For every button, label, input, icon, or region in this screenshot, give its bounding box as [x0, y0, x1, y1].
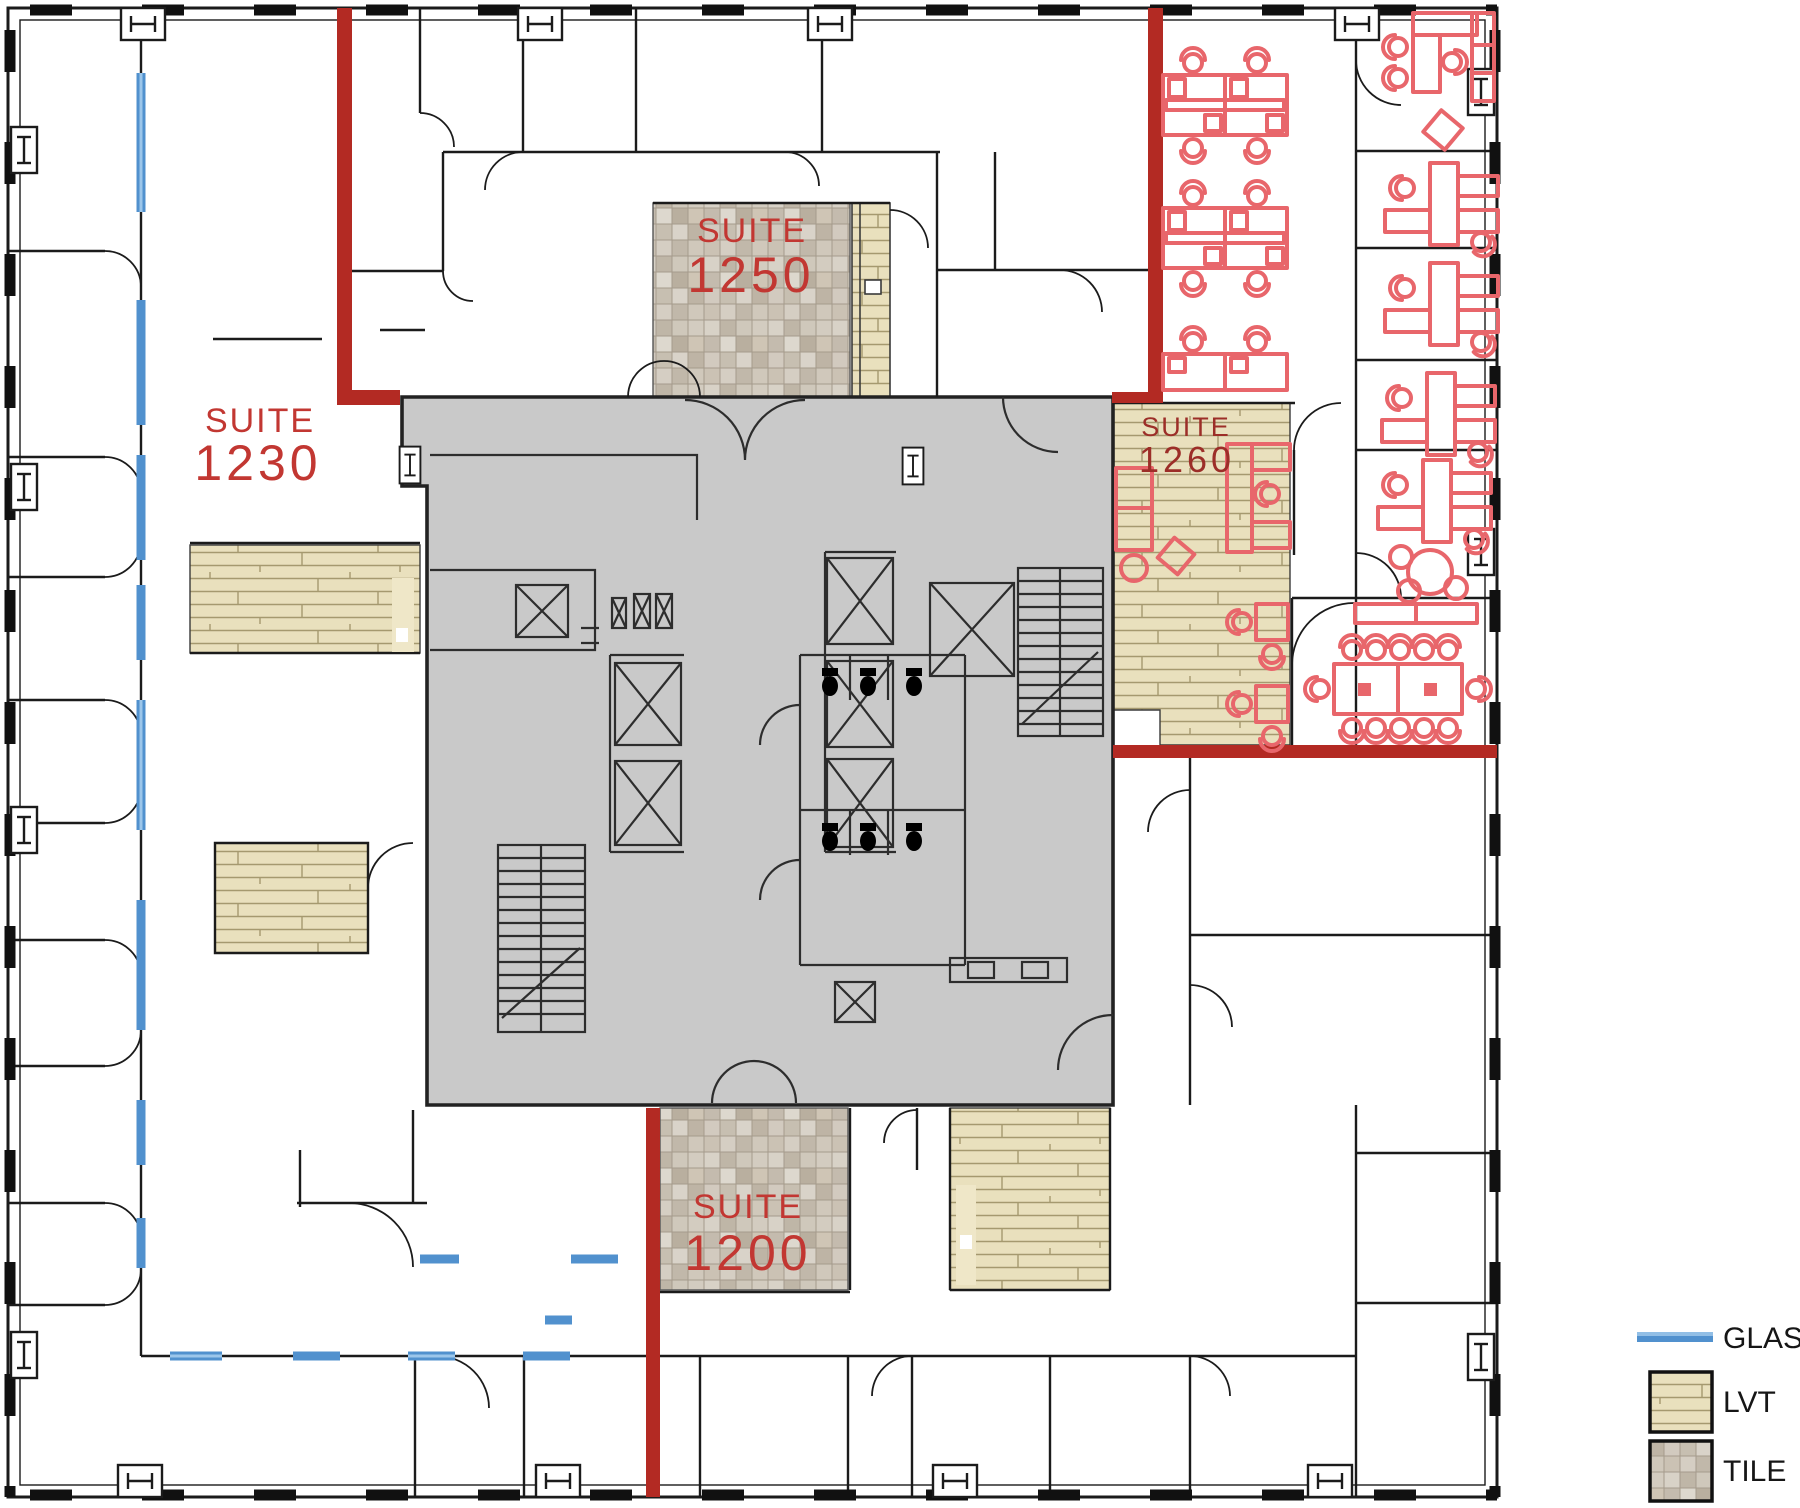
floor-plan-canvas: SUITE 1230 SUITE 1250 SUITE 1200 SUITE 1…: [0, 0, 1800, 1508]
suite-1260-number: 1260: [1139, 439, 1235, 480]
workstation-pair: [1163, 327, 1287, 390]
suite-1260-name: SUITE: [1141, 412, 1231, 442]
suite-1200-name: SUITE: [693, 1188, 803, 1226]
workstation-cluster: [1163, 181, 1287, 296]
workstation-cluster: [1163, 48, 1287, 163]
demising-wall-east: [1113, 745, 1497, 758]
suite-1250-number: 1250: [687, 247, 814, 303]
demising-wall-northwest: [337, 8, 400, 405]
building-core: [402, 397, 1113, 1105]
conference-room-furniture: [1305, 604, 1491, 743]
suite-1230-number: 1230: [194, 435, 321, 491]
office-desk: [1385, 163, 1500, 261]
demising-wall-south: [646, 1108, 660, 1497]
demising-wall-northeast: [1112, 8, 1163, 403]
legend-item-glass: GLASS: [1637, 1322, 1800, 1355]
glass-highlights: [141, 73, 455, 1356]
lvt-swatch: [1650, 1372, 1712, 1432]
office-desk: [1382, 373, 1497, 471]
lvt-area-suite1250-strip: [852, 203, 890, 398]
floor-plan-drawing: SUITE 1230 SUITE 1250 SUITE 1200 SUITE 1…: [0, 0, 1800, 1508]
core-outline: [402, 397, 1113, 1105]
suite-1200-number: 1200: [684, 1225, 811, 1281]
legend-item-lvt: LVT: [1650, 1372, 1776, 1432]
lvt-area-reception: [215, 843, 368, 953]
tile-swatch: [1650, 1441, 1712, 1501]
legend-label-tile: TILE: [1723, 1455, 1786, 1488]
legend: GLASS LVT TILE: [1637, 1322, 1800, 1501]
legend-label-glass: GLASS: [1723, 1322, 1800, 1355]
lvt-area-suite1230-corridor: [190, 545, 420, 653]
legend-item-tile: TILE: [1650, 1441, 1786, 1501]
legend-label-lvt: LVT: [1723, 1386, 1776, 1419]
office-desk: [1385, 263, 1500, 361]
suite-1250-name: SUITE: [697, 212, 807, 250]
